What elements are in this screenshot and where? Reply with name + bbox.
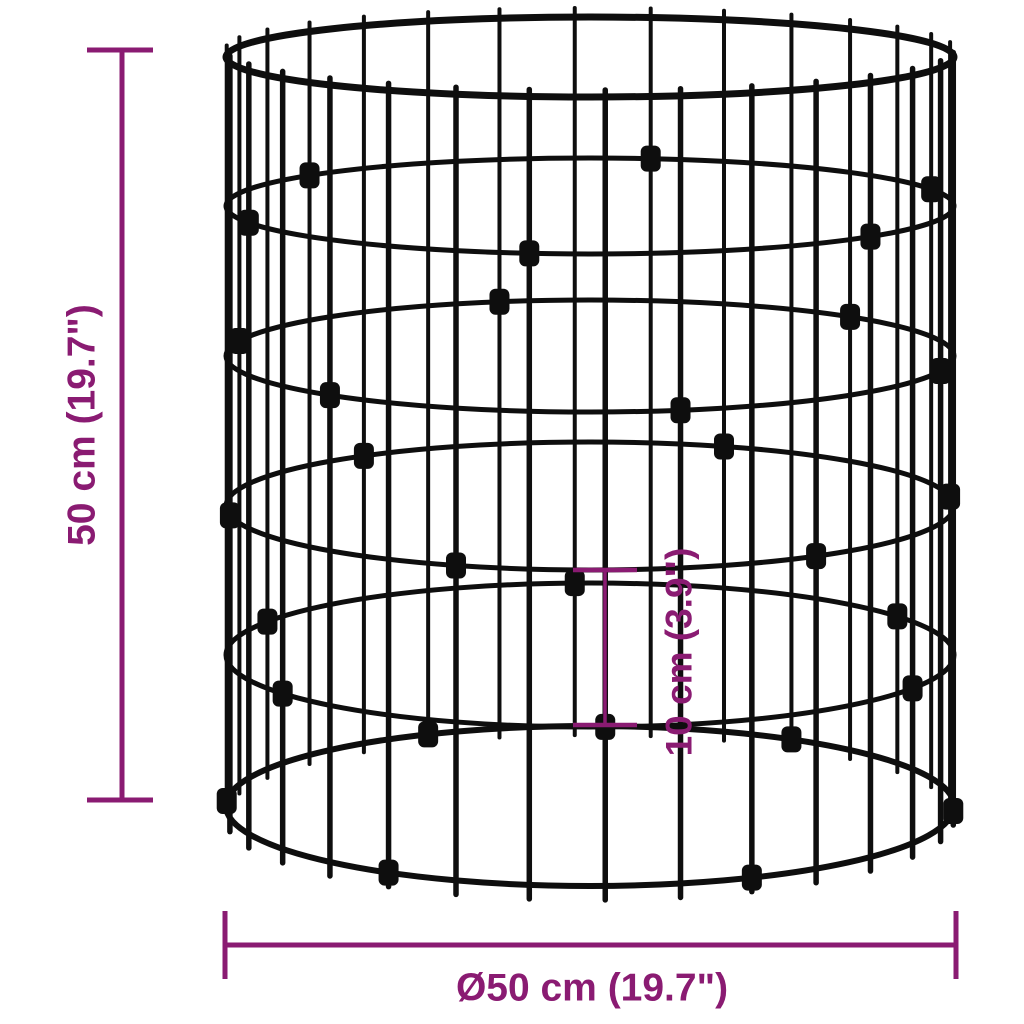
wire-clamp [921, 176, 941, 202]
wire-clamp [565, 570, 585, 596]
wire-clamp [903, 675, 923, 701]
wire-clamp [418, 721, 438, 747]
diameter-dimension-label: Ø50 cm (19.7") [456, 969, 728, 1008]
wire-clamp [860, 224, 880, 250]
wire-clamp [840, 304, 860, 330]
gabion-dimension-diagram: 50 cm (19.7") Ø50 cm (19.7") 10 cm (3.9"… [0, 0, 1024, 1024]
wire-clamp [887, 603, 907, 629]
wire-clamp [931, 358, 951, 384]
wire-clamp [220, 502, 240, 528]
ring-wire-0 [226, 17, 954, 97]
wire-clamp [806, 543, 826, 569]
wire-clamp [489, 289, 509, 315]
ring-wire-3 [226, 442, 954, 570]
wire-clamp [641, 146, 661, 172]
spacing-dimension-label: 10 cm (3.9") [661, 548, 698, 757]
dimension-lines [87, 50, 956, 979]
wire-clamp [239, 210, 259, 236]
wire-clamp [320, 382, 340, 408]
wire-clamp [257, 609, 277, 635]
ring-wire-4 [226, 583, 954, 727]
wire-clamp [217, 788, 237, 814]
wire-clamp [714, 433, 734, 459]
wire-clamp [300, 162, 320, 188]
wire-clamp [671, 397, 691, 423]
wire-clamp [379, 860, 399, 886]
height-dimension-label: 50 cm (19.7") [63, 304, 102, 546]
wire-clamp [354, 443, 374, 469]
wire-clamp [446, 553, 466, 579]
wire-clamp [781, 726, 801, 752]
wire-clamp [273, 681, 293, 707]
wire-clamp [742, 865, 762, 891]
wire-clamp [229, 328, 249, 354]
ring-wire-1 [226, 158, 954, 254]
wire-clamp [940, 484, 960, 510]
ring-wire-5 [226, 726, 954, 886]
wire-cage [217, 8, 964, 900]
wire-clamp [519, 240, 539, 266]
wireframe-cylinder-graphic [0, 0, 1024, 1024]
wire-clamp [943, 798, 963, 824]
